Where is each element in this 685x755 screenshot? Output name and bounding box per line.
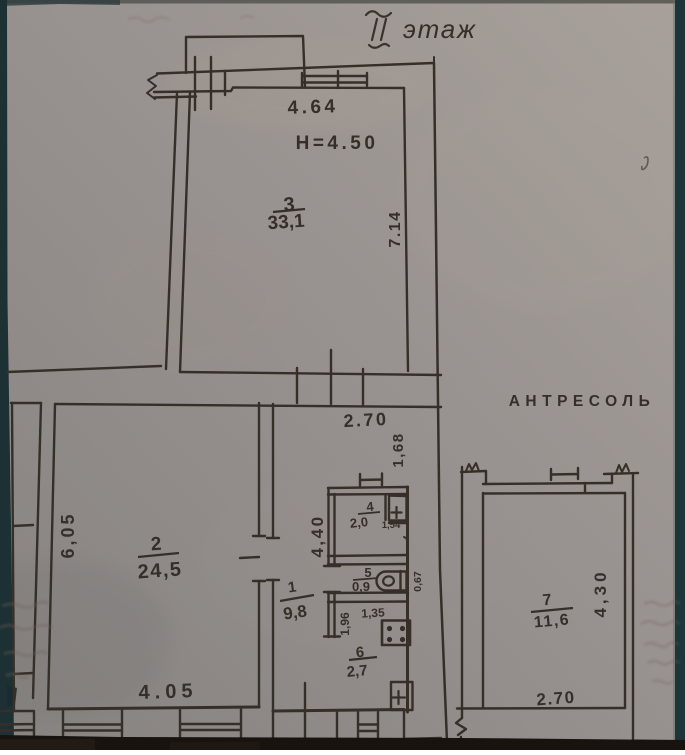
svg-text:4.05: 4.05: [138, 680, 198, 704]
svg-text:этаж: этаж: [403, 14, 477, 44]
svg-text:7.14: 7.14: [387, 210, 404, 247]
svg-text:2: 2: [150, 534, 162, 556]
svg-text:1,96: 1,96: [338, 612, 352, 636]
svg-text:11,6: 11,6: [533, 611, 571, 631]
svg-text:24,5: 24,5: [137, 558, 183, 583]
svg-text:4.64: 4.64: [287, 96, 339, 119]
svg-text:2.70: 2.70: [343, 409, 389, 431]
svg-text:1,35: 1,35: [361, 605, 385, 620]
svg-text:9,8: 9,8: [282, 601, 308, 623]
svg-text:4,40: 4,40: [308, 514, 327, 557]
svg-text:1,68: 1,68: [390, 432, 407, 467]
svg-text:2,0: 2,0: [349, 514, 369, 531]
svg-text:0,9: 0,9: [352, 579, 370, 594]
svg-text:H=4.50: H=4.50: [296, 133, 379, 154]
svg-text:2.70: 2.70: [536, 688, 576, 710]
svg-text:1,54: 1,54: [382, 520, 401, 531]
svg-text:7: 7: [542, 592, 552, 610]
svg-text:0,67: 0,67: [412, 571, 424, 592]
svg-text:33,1: 33,1: [267, 211, 306, 235]
svg-text:4,30: 4,30: [591, 568, 610, 617]
svg-text:2,7: 2,7: [346, 662, 368, 681]
svg-text:АНТРЕСОЛЬ: АНТРЕСОЛЬ: [509, 393, 656, 410]
svg-text:6,05: 6,05: [58, 511, 78, 558]
